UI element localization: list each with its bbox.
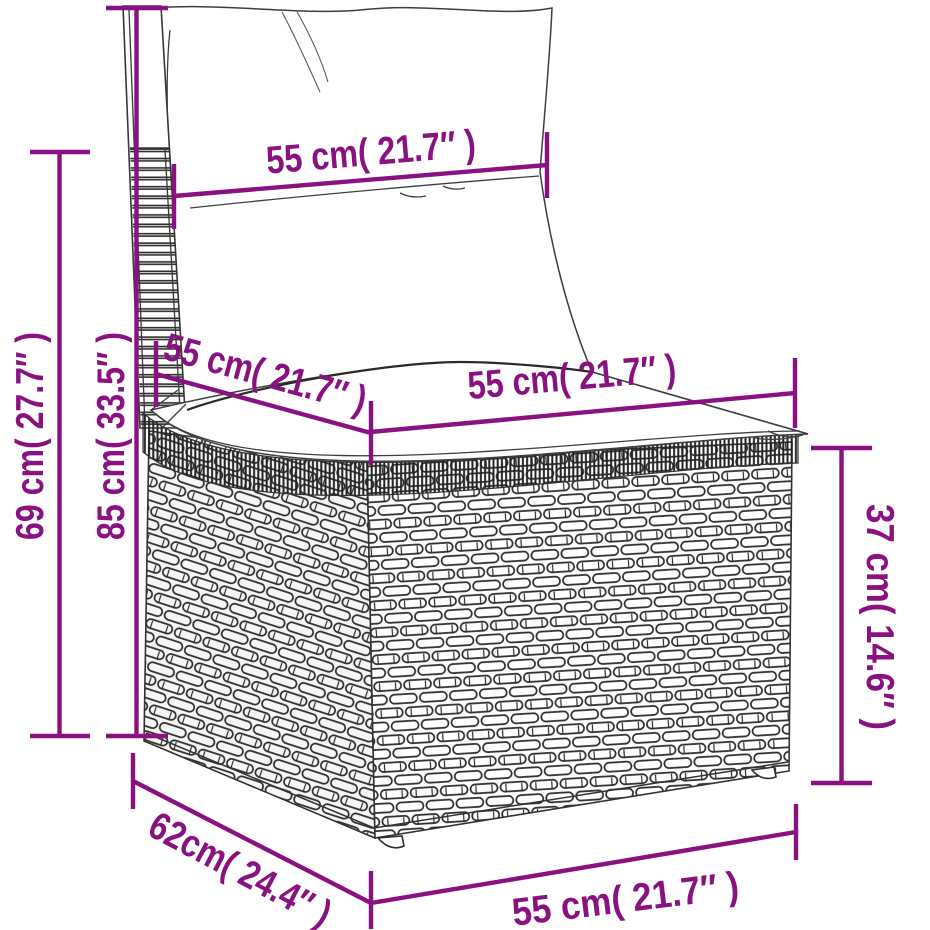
svg-text:69 cm( 27.7″ ): 69 cm( 27.7″ ) <box>9 332 52 540</box>
svg-text:85 cm( 33.5″ ): 85 cm( 33.5″ ) <box>90 332 133 540</box>
svg-text:37 cm( 14.6″ ): 37 cm( 14.6″ ) <box>858 504 901 730</box>
